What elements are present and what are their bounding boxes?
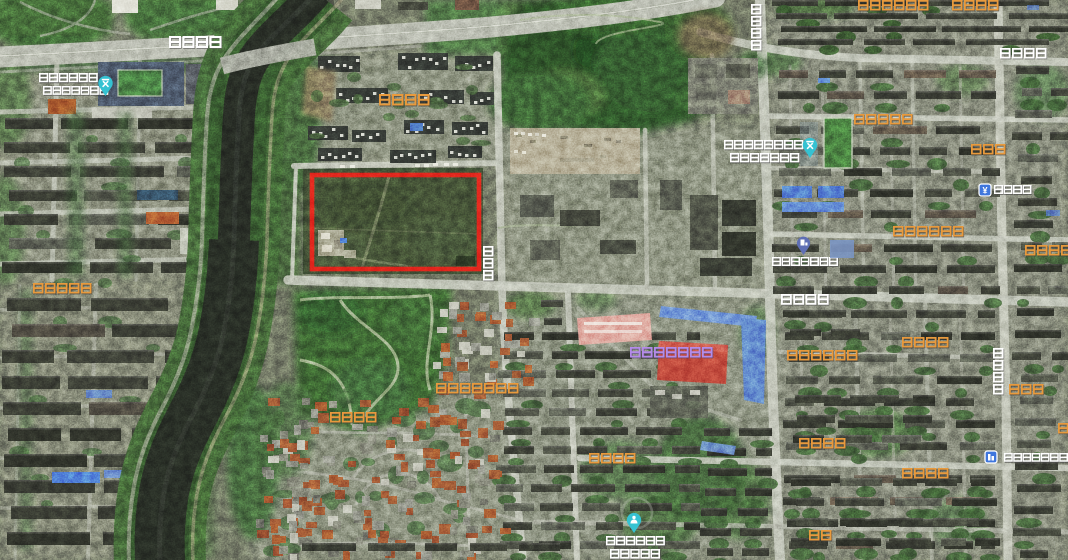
svg-text:¥: ¥: [982, 186, 987, 196]
